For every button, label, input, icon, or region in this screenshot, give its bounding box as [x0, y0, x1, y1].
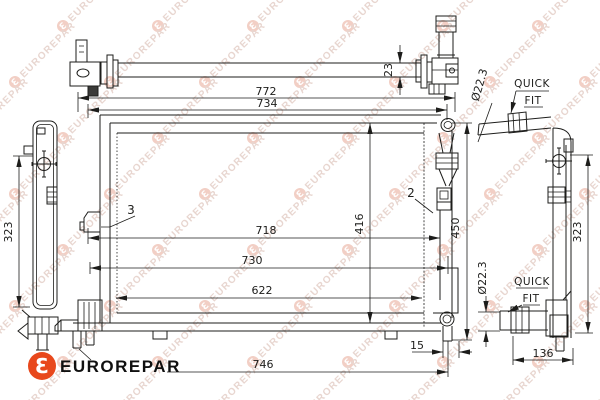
svg-text:EUROREPAR: EUROREPAR — [303, 20, 363, 80]
quick-fit-top-label-line1: QUICK — [514, 78, 550, 90]
svg-text:EUROREPAR: EUROREPAR — [303, 356, 363, 400]
svg-text:EUROREPAR: EUROREPAR — [588, 20, 600, 80]
svg-text:EUROREPAR: EUROREPAR — [66, 76, 126, 136]
svg-text:EUROREPAR: EUROREPAR — [113, 132, 173, 192]
quick-fit-bottom-label-line1: QUICK — [514, 276, 550, 288]
technical-drawing: EUROREPARƐEUROREPARƐEUROREPARƐEUROREPARƐ… — [0, 0, 600, 400]
part-label-3: 3 — [127, 203, 135, 217]
svg-text:EUROREPAR: EUROREPAR — [398, 244, 458, 304]
svg-text:EUROREPAR: EUROREPAR — [588, 356, 600, 400]
dim-136: 136 — [533, 347, 554, 360]
svg-text:EUROREPAR: EUROREPAR — [303, 132, 363, 192]
svg-text:EUROREPAR: EUROREPAR — [493, 356, 553, 400]
svg-text:EUROREPAR: EUROREPAR — [256, 300, 316, 360]
svg-text:EUROREPAR: EUROREPAR — [66, 0, 126, 24]
svg-text:EUROREPAR: EUROREPAR — [113, 244, 173, 304]
svg-text:EUROREPAR: EUROREPAR — [0, 0, 31, 24]
eurorepar-logo-text: EUROREPAR — [60, 357, 181, 376]
svg-text:EUROREPAR: EUROREPAR — [18, 20, 78, 80]
svg-text:EUROREPAR: EUROREPAR — [113, 20, 173, 80]
dim-730: 730 — [242, 254, 263, 267]
part-label-2: 2 — [407, 186, 415, 200]
svg-text:EUROREPAR: EUROREPAR — [446, 300, 506, 360]
dim-323-left: 323 — [2, 222, 15, 243]
svg-text:EUROREPAR: EUROREPAR — [398, 356, 458, 400]
svg-text:EUROREPAR: EUROREPAR — [256, 188, 316, 248]
dim-734: 734 — [257, 97, 278, 110]
dim-dia-bottom: Ø22.3 — [476, 261, 489, 294]
svg-text:EUROREPAR: EUROREPAR — [541, 76, 600, 136]
eurorepar-logo-mark-letter: Ɛ — [35, 354, 49, 378]
dim-23: 23 — [382, 63, 395, 77]
svg-text:EUROREPAR: EUROREPAR — [398, 132, 458, 192]
dim-746: 746 — [253, 358, 274, 371]
svg-text:EUROREPAR: EUROREPAR — [351, 300, 411, 360]
svg-text:EUROREPAR: EUROREPAR — [303, 244, 363, 304]
svg-text:EUROREPAR: EUROREPAR — [446, 0, 506, 24]
svg-text:EUROREPAR: EUROREPAR — [541, 0, 600, 24]
dim-15: 15 — [410, 339, 424, 352]
svg-text:EUROREPAR: EUROREPAR — [161, 300, 221, 360]
quick-fit-top-label-line2: FIT — [524, 95, 541, 107]
svg-text:EUROREPAR: EUROREPAR — [161, 76, 221, 136]
svg-text:EUROREPAR: EUROREPAR — [493, 20, 553, 80]
svg-text:EUROREPAR: EUROREPAR — [256, 0, 316, 24]
svg-text:EUROREPAR: EUROREPAR — [351, 76, 411, 136]
svg-text:EUROREPAR: EUROREPAR — [208, 20, 268, 80]
svg-text:EUROREPAR: EUROREPAR — [18, 132, 78, 192]
svg-text:EUROREPAR: EUROREPAR — [351, 0, 411, 24]
watermark-pattern: EUROREPARƐEUROREPARƐEUROREPARƐEUROREPARƐ… — [0, 0, 600, 400]
eurorepar-logo: Ɛ EUROREPAR — [28, 352, 181, 380]
svg-text:EUROREPAR: EUROREPAR — [18, 244, 78, 304]
svg-text:EUROREPAR: EUROREPAR — [161, 0, 221, 24]
quick-fit-bottom-label-line2: FIT — [522, 293, 539, 305]
svg-text:EUROREPAR: EUROREPAR — [0, 300, 31, 360]
dim-450: 450 — [449, 218, 462, 239]
dim-416: 416 — [353, 214, 366, 235]
dim-622: 622 — [252, 284, 273, 297]
svg-text:EUROREPAR: EUROREPAR — [0, 76, 31, 136]
svg-text:EUROREPAR: EUROREPAR — [208, 132, 268, 192]
radiator-technical-drawing-page: EUROREPARƐEUROREPARƐEUROREPARƐEUROREPARƐ… — [0, 0, 600, 400]
dim-323-right: 323 — [571, 222, 584, 243]
svg-text:EUROREPAR: EUROREPAR — [588, 244, 600, 304]
svg-text:EUROREPAR: EUROREPAR — [588, 132, 600, 192]
svg-text:EUROREPAR: EUROREPAR — [161, 188, 221, 248]
dim-718: 718 — [256, 224, 277, 237]
svg-text:EUROREPAR: EUROREPAR — [493, 132, 553, 192]
